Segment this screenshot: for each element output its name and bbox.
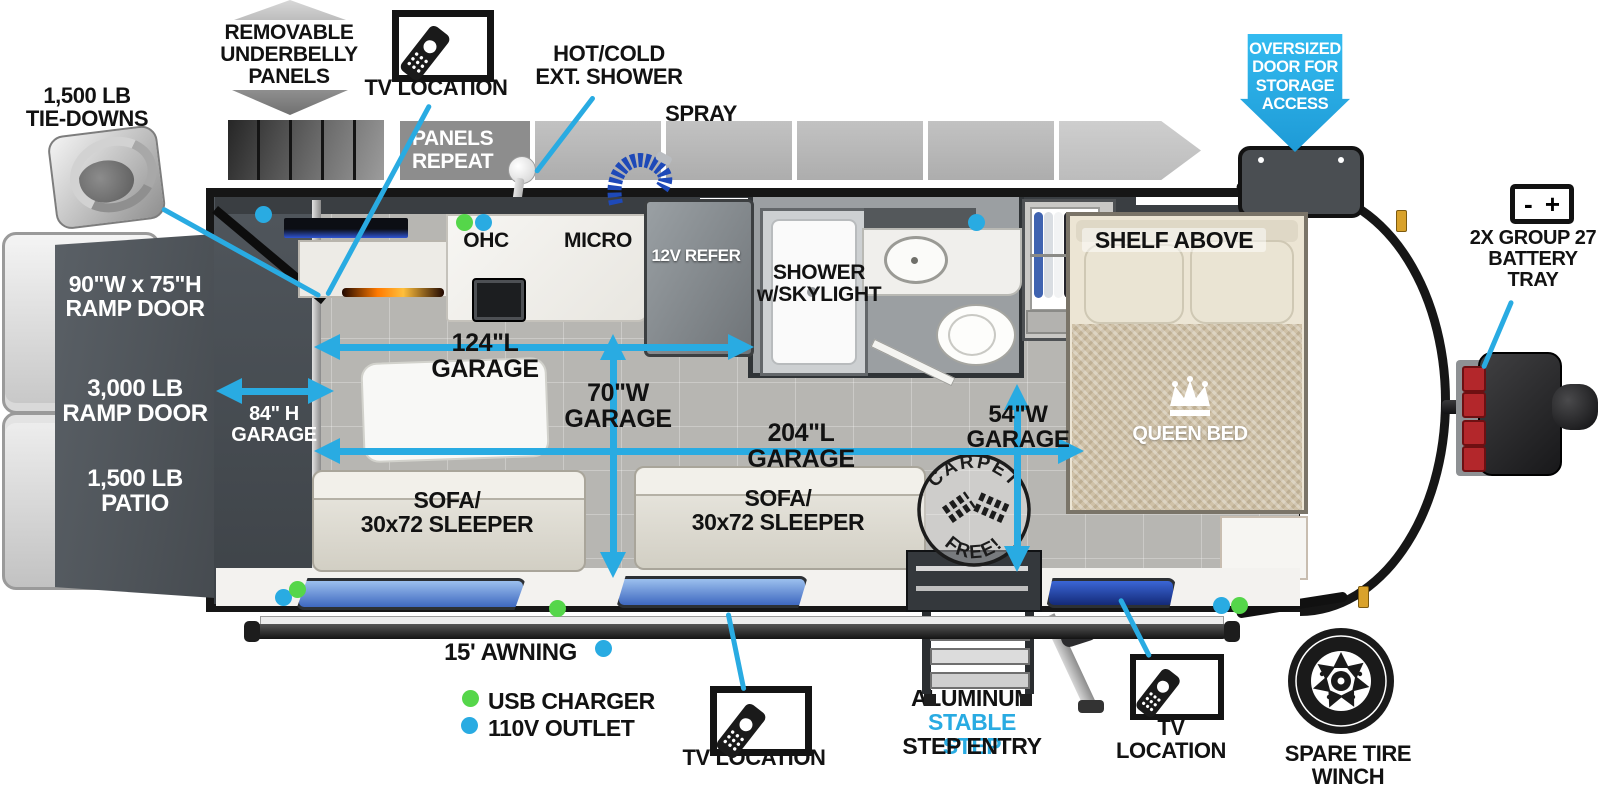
spare-tire-label: SPARE TIRE WINCH SYSTEM <box>1272 742 1424 786</box>
usb-legend-label: USB CHARGER <box>488 689 668 713</box>
underbelly-panel <box>928 121 1054 180</box>
battery-cell <box>1462 366 1486 392</box>
front-cap <box>1300 186 1450 616</box>
crown-icon <box>1162 376 1218 420</box>
fireplace <box>342 288 444 297</box>
window <box>616 576 808 608</box>
floorplan-diagram: 1,500 LB TIE-DOWNS REMOVABLE UNDERBELLY … <box>0 0 1600 786</box>
spare-tire-icon <box>1286 626 1396 736</box>
garage-70-label: 70"W GARAGE <box>562 380 674 433</box>
oversized-door-arrow: OVERSIZED DOOR FOR STORAGE ACCESS <box>1240 34 1350 152</box>
tv-icon-front <box>1130 654 1224 720</box>
battery-tray-box <box>1478 352 1562 476</box>
battery-icon: - + <box>1510 184 1574 224</box>
battery-plus: + <box>1545 189 1560 220</box>
awning-label: 15' AWNING <box>418 640 603 665</box>
window <box>1046 578 1176 608</box>
110v-outlet-dot <box>968 214 985 231</box>
pillow <box>1084 244 1184 324</box>
hitch-coupler <box>1552 384 1598 430</box>
underbelly-panel-arrow <box>1059 121 1201 180</box>
step-entry-label-3: STEP ENTRY <box>898 734 1046 758</box>
screw-icon <box>1258 157 1264 163</box>
queen-bed-label: QUEEN BED <box>1126 424 1254 445</box>
marker-light <box>1358 586 1369 608</box>
awning-endcap <box>244 621 260 642</box>
patio-capacity-label: 1,500 LB PATIO <box>55 466 215 516</box>
tv-icon-top <box>392 10 494 82</box>
garage-204-label: 204"L GARAGE <box>726 420 876 473</box>
110v-outlet-dot <box>1213 597 1230 614</box>
ext-shower-label: HOT/COLD EXT. SHOWER <box>534 42 684 88</box>
battery-cell <box>1462 446 1486 472</box>
marker-light <box>1396 210 1407 232</box>
shower-label: SHOWER w/SKYLIGHT <box>750 262 888 306</box>
micro-label: MICRO <box>550 230 646 252</box>
usb-charger-dot <box>1231 597 1248 614</box>
usb-charger-dot <box>456 214 473 231</box>
110v-outlet-dot <box>475 214 492 231</box>
tv-front-label: TV LOCATION <box>1100 716 1242 762</box>
usb-charger-dot <box>289 581 306 598</box>
underbelly-dark-panel <box>228 120 384 180</box>
tv-icon-bottom <box>710 686 812 756</box>
spray-port-hose-icon <box>600 136 684 208</box>
ramp-capacity-label: 3,000 LB RAMP DOOR <box>55 376 215 426</box>
ramp-size-label: 90"W x 75"H RAMP DOOR <box>55 272 215 320</box>
110v-outlet-dot <box>255 206 272 223</box>
queen-bed: QUEEN BED <box>1066 212 1308 514</box>
usb-legend-dot <box>462 690 479 707</box>
ohc-label: OHC <box>448 230 524 252</box>
shelf-above-label: SHELF ABOVE <box>1082 228 1266 252</box>
battery-tray-label: 2X GROUP 27 BATTERY TRAY <box>1466 228 1600 291</box>
underbelly-arrow-down-icon <box>232 90 348 115</box>
outlet-legend-dot <box>461 717 478 734</box>
awning-endcap <box>1224 621 1240 642</box>
sofa-1-label: SOFA/ 30x72 SLEEPER <box>330 488 564 536</box>
garage-84-arrow <box>240 388 310 395</box>
battery-cell <box>1462 392 1486 418</box>
battery-minus: - <box>1524 189 1533 220</box>
ramp-door: 90"W x 75"H RAMP DOOR 3,000 LB RAMP DOOR… <box>55 234 215 598</box>
garage-54-label: 54"W GARAGE <box>960 402 1076 452</box>
tie-down-icon <box>46 123 173 236</box>
stabilizer-jack-foot <box>1078 700 1104 713</box>
bath-backsplash <box>864 208 976 230</box>
garage-84-label: 84" H GARAGE <box>222 404 326 446</box>
garage-204-arrow <box>338 448 1060 455</box>
battery-cell <box>1462 420 1486 446</box>
underbelly-panel <box>666 121 792 180</box>
110v-outlet-dot <box>595 640 612 657</box>
sofa-2-label: SOFA/ 30x72 SLEEPER <box>652 486 904 534</box>
cooktop <box>472 278 526 322</box>
storage-door <box>1238 146 1364 218</box>
garage-124-label: 124"L GARAGE <box>415 330 555 383</box>
underbelly-arrow-up-icon <box>234 0 346 20</box>
usb-charger-dot <box>549 600 566 617</box>
outlet-legend-label: 110V OUTLET <box>488 716 668 740</box>
bath-sink <box>884 236 948 284</box>
window <box>296 578 526 610</box>
underbelly-panel <box>797 121 923 180</box>
refer-label: 12V REFER <box>646 247 746 265</box>
awning-roller <box>252 624 1230 639</box>
underbelly-label: REMOVABLE UNDERBELLY PANELS <box>218 22 360 88</box>
interior-tv <box>284 218 408 238</box>
toilet <box>936 304 1016 366</box>
tie-downs-label: 1,500 LB TIE-DOWNS <box>8 84 166 130</box>
screw-icon <box>1338 157 1344 163</box>
oversized-door-label: OVERSIZED DOOR FOR STORAGE ACCESS <box>1240 40 1350 114</box>
